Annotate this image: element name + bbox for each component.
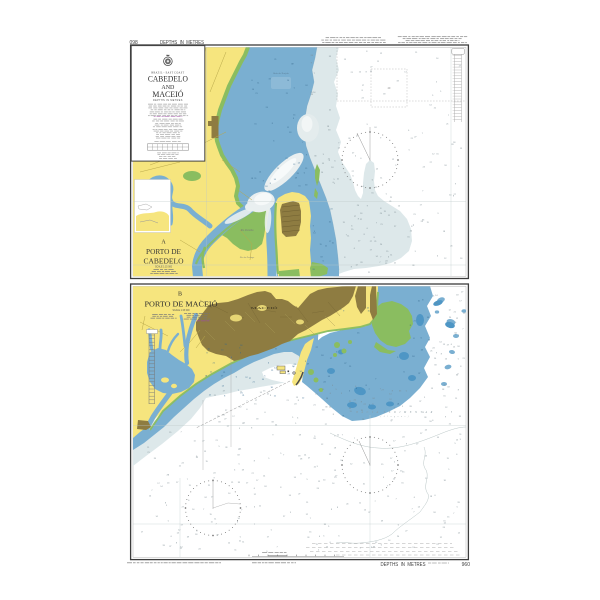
svg-text:MACEIÓ: MACEIÓ [251,305,279,310]
svg-text:PORTO DE: PORTO DE [146,248,181,256]
svg-text:B: B [178,292,182,298]
svg-text:CABEDELO: CABEDELO [148,75,188,84]
svg-text:Baía da Traição: Baía da Traição [273,72,289,75]
svg-text:SCALE 1:15 000: SCALE 1:15 000 [172,309,190,312]
svg-text:MACEIÓ: MACEIÓ [152,89,183,99]
svg-text:A: A [161,240,166,246]
svg-text:Rio Paraíba: Rio Paraíba [240,229,254,232]
svg-text:960: 960 [462,562,471,568]
svg-text:( A l a g o a s ): ( A l a g o a s ) [381,415,410,418]
svg-text:CABEDELO: CABEDELO [144,258,184,266]
svg-text:PORTO DE MACEIÓ: PORTO DE MACEIÓ [145,299,218,309]
svg-text:SCALE 1:15 000: SCALE 1:15 000 [155,266,173,269]
svg-text:DEPTHS IN METRES: DEPTHS IN METRES [153,99,183,102]
svg-text:DEPTHS IN METRES: DEPTHS IN METRES [381,562,427,568]
svg-text:Ilha da Restinga: Ilha da Restinga [239,256,255,259]
